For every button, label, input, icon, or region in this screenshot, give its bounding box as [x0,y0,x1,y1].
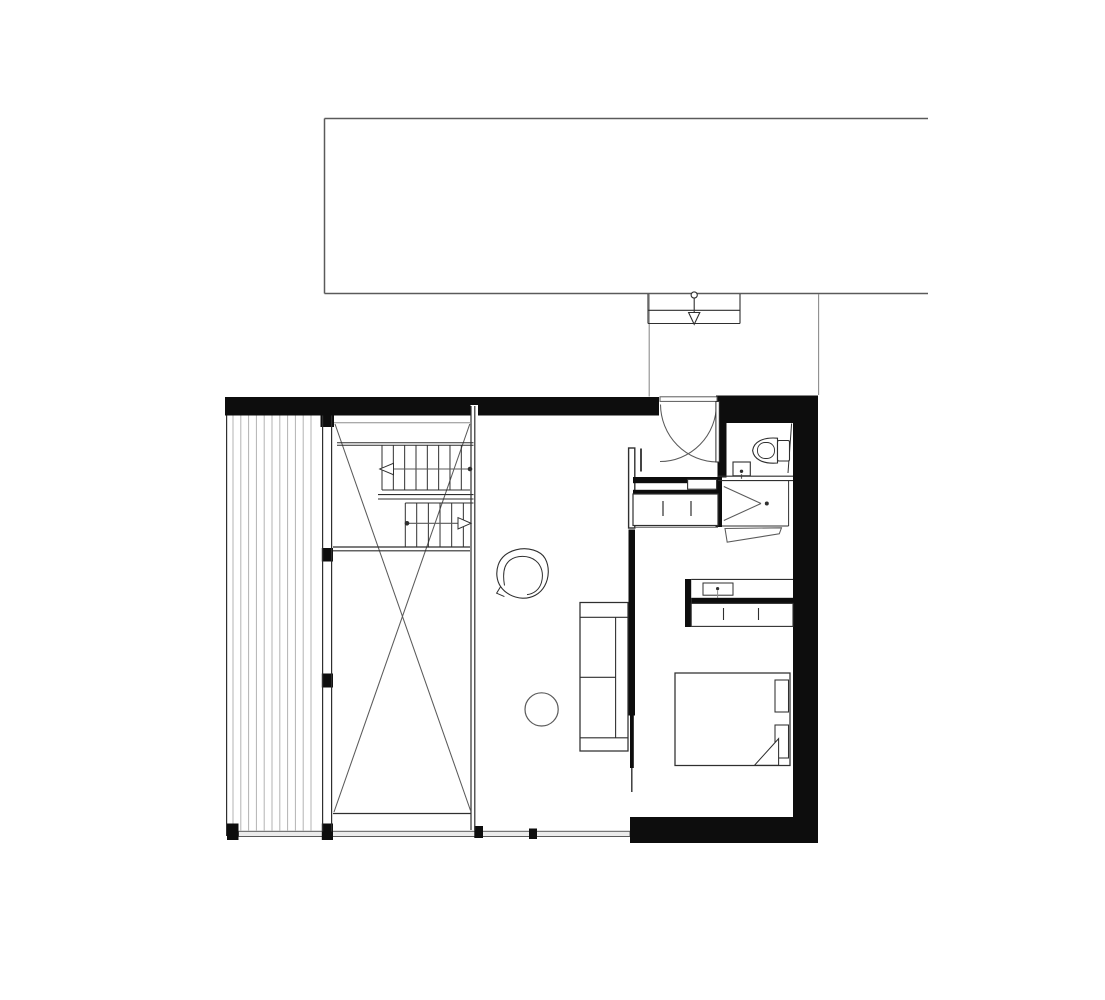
side-table [525,693,558,726]
glazed-wall-west [323,416,332,832]
shower [718,476,793,542]
deck-plank-hatch [233,416,311,831]
shelf-cabinet [691,603,793,626]
shelf-tap-icon [716,587,719,590]
sill-post-mid [474,826,483,838]
wall-bedroom-partition [629,530,636,716]
entry-door [660,397,719,462]
armchair [497,549,549,598]
stair-direction-arrow-upper [380,463,473,474]
south-glazing-sill [239,831,631,836]
entrance-marker [648,292,740,324]
shower-drain-icon [765,502,769,506]
floor-plan-drawing [0,0,1105,1000]
bathroom [733,424,792,479]
door-threshold [660,397,717,402]
kitchen-counter-front-edge [633,490,718,494]
wall-top-left [225,397,659,416]
toilet-bowl [753,438,778,463]
deck-corner-post [227,824,239,841]
bed [675,673,790,766]
sofa [580,603,628,752]
wall-bedroom-partition-lower [630,716,634,769]
kitchen-cabinet [633,494,718,526]
door-leaf [716,402,719,463]
toilet-cistern [778,441,790,462]
stair-direction-arrow-lower [405,518,471,529]
shelf-end-panel [685,579,691,627]
x-brace-diagonal-2 [334,424,470,812]
floor-plan-page [0,0,1105,1000]
staircase [333,443,474,551]
bed-pillow [775,680,789,712]
entrance-point-circle [691,292,697,298]
living-room [497,549,628,751]
wall-bottom-right [630,817,818,843]
stair-arrowhead-right-icon [458,518,471,529]
stair-lower-treads [417,503,464,547]
door-swing-arc-2 [660,404,717,462]
shelf-unit [685,579,793,627]
shelf-counter-edge [691,598,793,604]
deck [227,397,311,836]
wall-right [793,396,818,844]
bedroom [632,579,793,792]
entrance-arrow-icon [689,313,700,325]
shower-door-panel [725,528,782,542]
upper-building-outline [325,119,929,294]
kitchen-sink [688,479,717,489]
sill-post-small [529,829,537,840]
entry-path-lines [649,294,818,397]
basin-tap-icon [740,470,743,473]
